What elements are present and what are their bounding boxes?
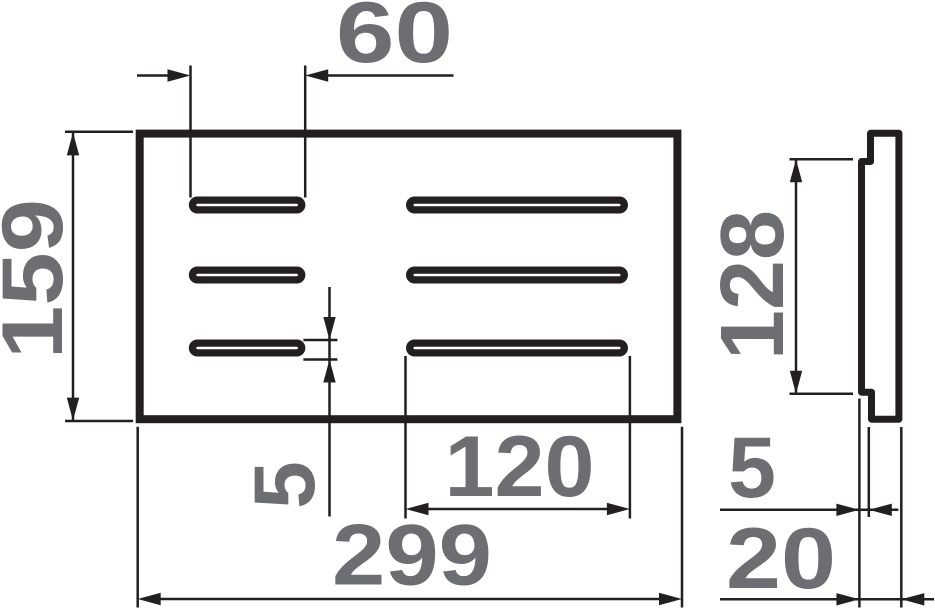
svg-text:5: 5 — [237, 461, 333, 509]
svg-text:120: 120 — [445, 419, 595, 515]
svg-text:60: 60 — [336, 0, 453, 81]
svg-text:159: 159 — [0, 199, 81, 359]
svg-text:128: 128 — [703, 210, 803, 360]
svg-text:20: 20 — [726, 511, 836, 607]
svg-text:5: 5 — [728, 420, 776, 516]
svg-text:299: 299 — [332, 508, 492, 604]
